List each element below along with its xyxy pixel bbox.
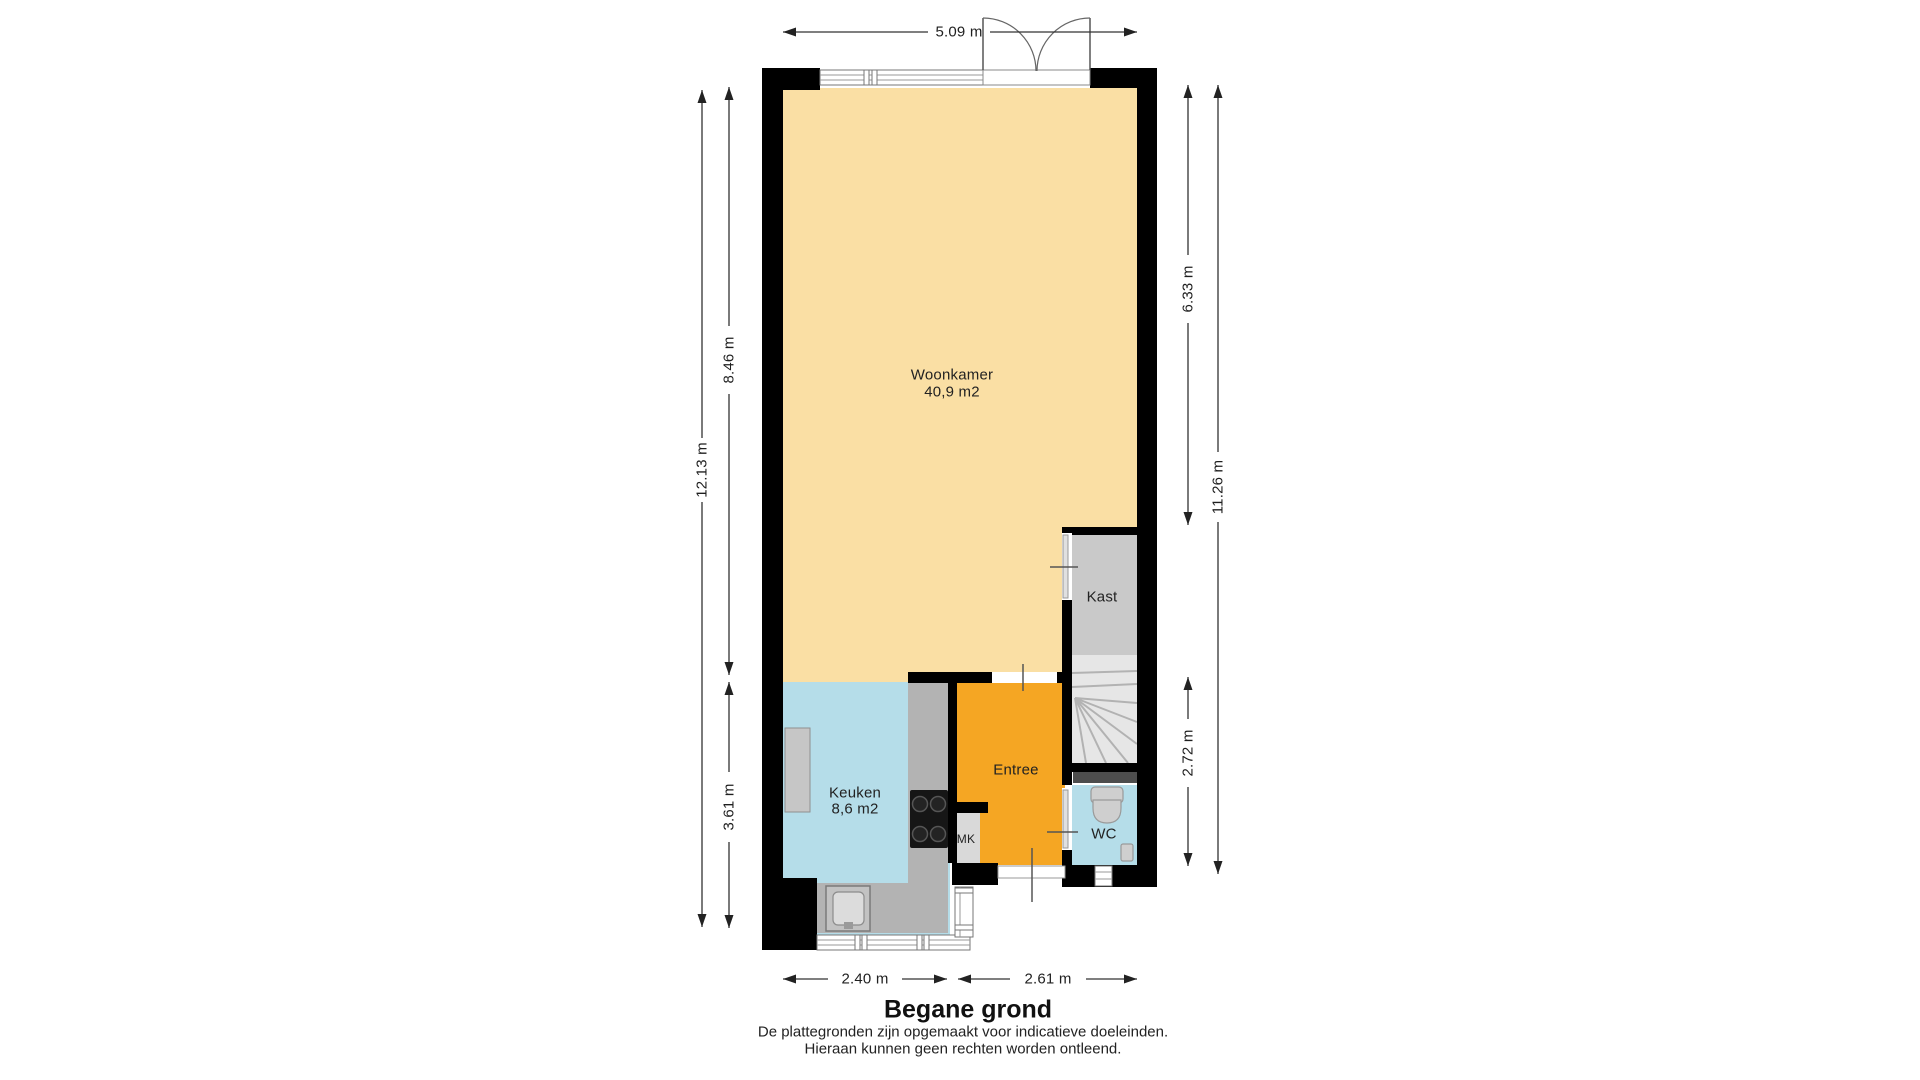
room-label-entree: Entree bbox=[993, 762, 1038, 779]
room-label-keuken: Keuken bbox=[829, 785, 881, 802]
dim-left-upper-label: 8.46 m bbox=[721, 336, 738, 383]
room-label-wc: WC bbox=[1091, 826, 1116, 843]
radiator bbox=[1073, 772, 1137, 783]
room-label-mk: MK bbox=[957, 832, 975, 846]
dim-bottom-right-label: 2.61 m bbox=[1024, 971, 1071, 988]
dim-bottom-left-label: 2.40 m bbox=[841, 971, 888, 988]
kitchen-sink bbox=[826, 886, 870, 931]
room-area-keuken: 8,6 m2 bbox=[831, 801, 878, 818]
window-kitchen-side bbox=[955, 887, 973, 937]
room-label-kast: Kast bbox=[1087, 589, 1118, 606]
plan-title: Begane grond bbox=[884, 996, 1052, 1025]
kitchen-cooktop bbox=[910, 790, 948, 848]
toilet bbox=[1091, 787, 1123, 823]
window-top bbox=[820, 70, 983, 85]
plan-disclaimer-line-2: Hieraan kunnen geen rechten worden ontle… bbox=[805, 1041, 1122, 1058]
dim-right-upper-label: 6.33 m bbox=[1180, 265, 1197, 312]
dim-top-width-label: 5.09 m bbox=[935, 24, 982, 41]
kitchen-counter-left bbox=[785, 728, 810, 812]
french-doors bbox=[983, 18, 1090, 85]
dim-left-total-label: 12.13 m bbox=[694, 442, 711, 498]
hand-basin bbox=[1121, 844, 1133, 861]
window-kitchen-bottom bbox=[817, 935, 970, 950]
dim-right-total-label: 11.26 m bbox=[1210, 460, 1227, 515]
window-wc bbox=[1095, 866, 1112, 886]
plan-disclaimer-line-1: De plattegronden zijn opgemaakt voor ind… bbox=[758, 1024, 1168, 1041]
room-area-woonkamer: 40,9 m2 bbox=[924, 384, 980, 401]
dim-left-lower-label: 3.61 m bbox=[721, 783, 738, 830]
dim-right-lower-label: 2.72 m bbox=[1180, 729, 1197, 776]
floor-plan-svg bbox=[0, 0, 1920, 1080]
floorplan-page: 5.09 m 12.13 m 8.46 m 3.61 m 6.33 m 2.72… bbox=[0, 0, 1920, 1080]
room-label-woonkamer: Woonkamer bbox=[911, 367, 993, 384]
